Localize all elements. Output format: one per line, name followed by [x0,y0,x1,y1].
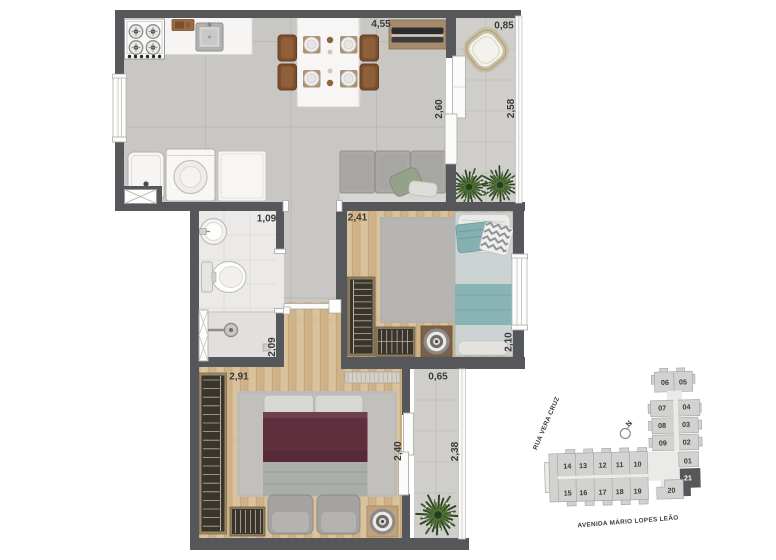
svg-text:14: 14 [563,461,571,470]
svg-text:07: 07 [658,403,666,412]
svg-text:18: 18 [616,487,624,496]
svg-text:05: 05 [679,377,687,386]
svg-text:16: 16 [579,488,587,497]
svg-text:06: 06 [661,378,669,387]
svg-text:0,85: 0,85 [494,21,514,32]
svg-text:01: 01 [684,456,692,465]
svg-text:03: 03 [682,420,690,429]
svg-text:20: 20 [667,486,675,495]
svg-text:2,10: 2,10 [504,332,515,352]
svg-text:21: 21 [684,473,692,482]
svg-text:2,40: 2,40 [393,441,404,461]
svg-text:4,55: 4,55 [371,19,391,30]
svg-text:02: 02 [683,438,691,447]
svg-text:09: 09 [659,438,667,447]
svg-text:2,91: 2,91 [229,372,249,383]
svg-text:10: 10 [633,460,641,469]
svg-text:1,09: 1,09 [257,214,277,225]
svg-text:2,60: 2,60 [434,99,445,119]
svg-text:15: 15 [564,488,572,497]
svg-text:13: 13 [579,461,587,470]
svg-text:11: 11 [616,460,624,469]
svg-text:19: 19 [634,487,642,496]
svg-text:04: 04 [682,402,690,411]
svg-text:2,41: 2,41 [348,213,368,224]
svg-text:2,38: 2,38 [450,441,461,461]
svg-text:12: 12 [598,460,606,469]
svg-text:2,58: 2,58 [506,98,517,118]
svg-text:2,09: 2,09 [267,337,278,357]
svg-text:08: 08 [658,421,666,430]
svg-text:0,65: 0,65 [428,372,448,383]
svg-text:17: 17 [598,487,606,496]
